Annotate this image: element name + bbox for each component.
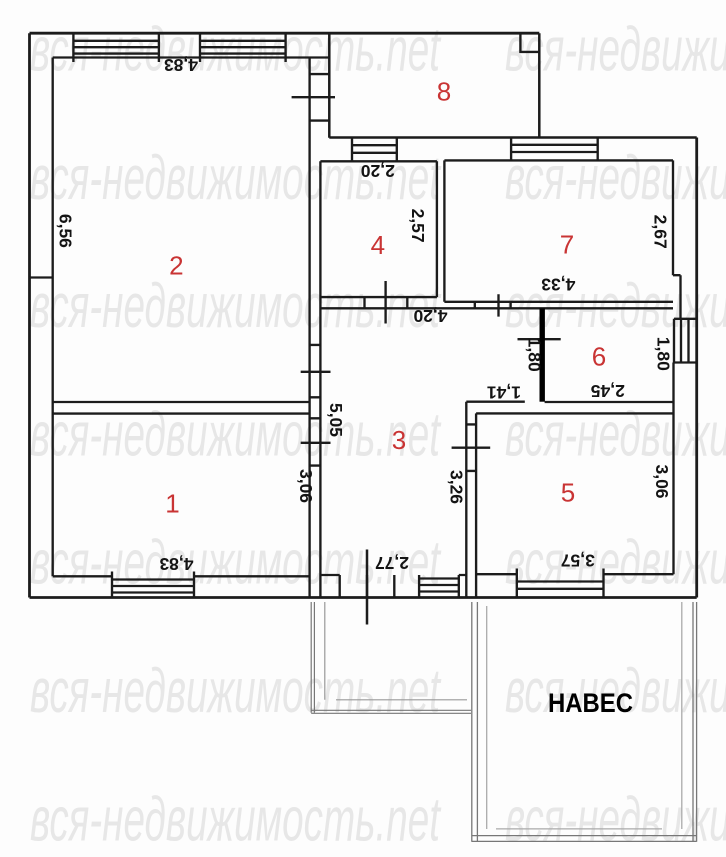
svg-text:вся-недвижимость.net: вся-недвижимость.net	[30, 657, 442, 726]
svg-text:1,80: 1,80	[525, 338, 545, 372]
svg-text:2,67: 2,67	[651, 215, 671, 249]
svg-text:1: 1	[165, 489, 179, 519]
svg-text:вся-недвижимость.net: вся-недвижимость.net	[30, 785, 442, 854]
svg-text:2,20: 2,20	[361, 161, 395, 181]
svg-text:вся-недвижимость.net: вся-недвижимость.net	[505, 529, 726, 598]
svg-text:2,57: 2,57	[408, 209, 428, 243]
svg-text:6,56: 6,56	[55, 214, 75, 248]
svg-text:НАВЕС: НАВЕС	[548, 688, 633, 718]
svg-text:4,33: 4,33	[541, 275, 575, 295]
svg-text:3,57: 3,57	[561, 550, 595, 570]
svg-text:3,06: 3,06	[652, 464, 672, 498]
svg-text:4,83: 4,83	[164, 55, 198, 75]
svg-text:3,06: 3,06	[296, 469, 316, 503]
svg-text:8: 8	[437, 77, 451, 107]
svg-text:3: 3	[392, 425, 406, 455]
svg-text:6: 6	[592, 342, 606, 372]
svg-text:4: 4	[371, 230, 385, 260]
svg-text:1,41: 1,41	[487, 383, 521, 403]
svg-text:3,26: 3,26	[447, 470, 467, 504]
svg-text:вся-недвижимость.net: вся-недвижимость.net	[30, 400, 442, 469]
svg-text:1,80: 1,80	[654, 337, 674, 371]
svg-text:2: 2	[169, 250, 183, 280]
svg-text:7: 7	[560, 230, 574, 260]
svg-text:4,83: 4,83	[159, 554, 193, 574]
svg-text:2,45: 2,45	[591, 381, 625, 401]
svg-text:вся-недвижимость.net: вся-недвижимость.net	[505, 272, 726, 341]
svg-text:вся-недвижимость.net: вся-недвижимость.net	[30, 272, 442, 341]
svg-text:5,05: 5,05	[326, 403, 346, 437]
svg-text:вся-недвижимость.net: вся-недвижимость.net	[505, 144, 726, 213]
svg-text:2,77: 2,77	[375, 553, 409, 573]
svg-text:4,20: 4,20	[413, 306, 447, 326]
svg-text:вся-недвижимость.net: вся-недвижимость.net	[505, 400, 726, 469]
svg-text:5: 5	[561, 478, 575, 508]
svg-text:вся-недвижимость.net: вся-недвижимость.net	[30, 16, 442, 85]
